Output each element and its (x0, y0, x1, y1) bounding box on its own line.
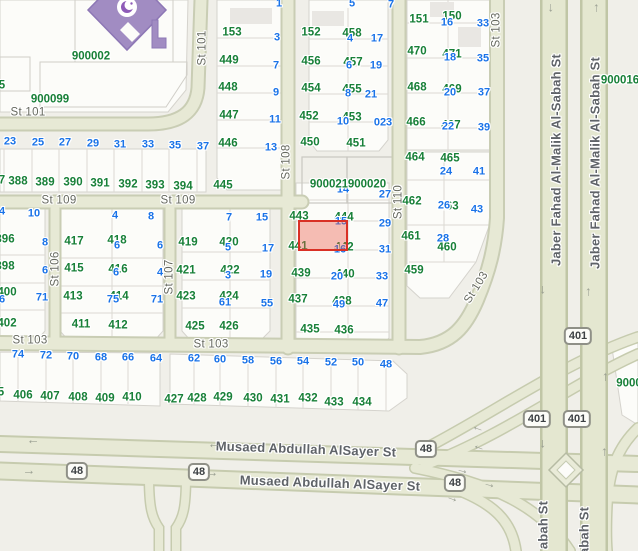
parcel-number-label: 435 (300, 324, 319, 336)
parcel-number-label: 7 (0, 175, 5, 187)
address-number-label: 37 (197, 142, 209, 153)
address-number-label: 71 (151, 295, 163, 306)
address-number-label: 9 (273, 88, 279, 99)
route-shield-48: 48 (66, 462, 88, 480)
address-number-label: 29 (87, 139, 99, 150)
map-labels-layer: 5738838939039139239339415344944844744644… (0, 0, 638, 551)
address-number-label: 17 (262, 244, 274, 255)
address-number-label: 3 (274, 33, 280, 44)
parcel-number-label: 425 (185, 321, 204, 333)
parcel-number-label: 448 (218, 82, 237, 94)
address-number-label: 27 (59, 138, 71, 149)
address-number-label: 6 (346, 61, 352, 72)
road-direction-arrow-icon: → (455, 461, 471, 477)
parcel-number-label: 459 (404, 265, 423, 277)
address-number-label: 43 (471, 205, 483, 216)
complex-number-label: 9000 (616, 378, 638, 390)
parcel-number-label: 447 (219, 110, 238, 122)
road-direction-arrow-icon: → (482, 475, 498, 491)
address-number-label: 6 (157, 241, 163, 252)
address-number-label: 20 (444, 88, 456, 99)
address-number-label: 28 (437, 234, 449, 245)
address-number-label: 33 (477, 19, 489, 30)
route-shield-401: 401 (564, 327, 592, 345)
address-number-label: 8 (148, 212, 154, 223)
parcel-number-label: 413 (63, 291, 82, 303)
road-direction-arrow-icon: → (580, 286, 593, 299)
address-number-label: 3 (225, 271, 231, 282)
road-direction-arrow-icon: → (208, 442, 221, 455)
street-name-label: Musaed Abdullah AlSayer St (240, 473, 421, 492)
address-number-label: 25 (32, 138, 44, 149)
parcel-number-label: 393 (145, 180, 164, 192)
road-direction-arrow-icon: → (596, 446, 609, 459)
parcel-number-label: 408 (68, 392, 87, 404)
map-canvas[interactable]: 5738838939039139239339415344944844744644… (0, 0, 638, 551)
address-number-label: 75 (107, 295, 119, 306)
address-number-label: 4 (112, 211, 118, 222)
parcel-number-label: 388 (8, 176, 27, 188)
parcel-number-label: 415 (64, 263, 83, 275)
road-direction-arrow-icon: → (588, 2, 601, 15)
address-number-label: 6 (42, 266, 48, 277)
parcel-number-label: 461 (401, 231, 420, 243)
street-name-label: St 101 (197, 30, 209, 65)
street-name-label: St 101 (10, 107, 45, 119)
parcel-number-label: 451 (346, 138, 365, 150)
parcel-number-label: 392 (118, 179, 137, 191)
parcel-number-label: 421 (176, 265, 195, 277)
parcel-number-label: 468 (407, 82, 426, 94)
parcel-number-label: 445 (213, 180, 232, 192)
address-number-label: 5 (225, 243, 231, 254)
address-number-label: 26 (438, 201, 450, 212)
street-name-label: St 103 (12, 335, 47, 347)
address-number-label: 4 (157, 268, 163, 279)
parcel-number-label: 407 (40, 391, 59, 403)
parcel-number-label: 411 (72, 319, 91, 331)
address-number-label: 41 (473, 167, 485, 178)
address-number-label: 31 (114, 140, 126, 151)
parcel-number-label: 389 (35, 177, 54, 189)
address-number-label: 7 (388, 0, 394, 11)
address-number-label: 64 (150, 354, 162, 365)
address-number-label: 70 (67, 352, 79, 363)
address-number-label: 35 (477, 54, 489, 65)
parcel-number-label: 423 (176, 291, 195, 303)
parcel-number-label: 5 (0, 80, 5, 92)
address-number-label: 1 (276, 0, 282, 10)
address-number-label: 71 (36, 293, 48, 304)
street-name-label: abah St (537, 501, 550, 549)
parcel-number-label: 446 (218, 138, 237, 150)
address-number-label: 4 (0, 207, 5, 218)
address-number-label: 24 (440, 167, 452, 178)
address-number-label: 16 (441, 18, 453, 29)
street-name-label: Jaber Fahad Al-Malik Al-Sabah St (589, 57, 602, 269)
address-number-label: 23 (4, 137, 16, 148)
parcel-number-label: 428 (187, 393, 206, 405)
address-number-label: 47 (376, 299, 388, 310)
address-number-label: 7 (226, 213, 232, 224)
address-number-label: 35 (169, 141, 181, 152)
street-name-label: Musaed Abdullah AlSayer St (216, 439, 397, 458)
parcel-number-label: 151 (409, 14, 428, 26)
address-number-label: 8 (345, 89, 351, 100)
road-direction-arrow-icon: → (445, 489, 462, 506)
address-number-label: 39 (478, 123, 490, 134)
parcel-number-label: 454 (301, 83, 320, 95)
address-number-label: 66 (122, 353, 134, 364)
street-name-label: abah St (578, 507, 591, 551)
complex-number-label: 900016 (601, 75, 638, 87)
address-number-label: 27 (379, 190, 391, 201)
address-number-label: 19 (370, 61, 382, 72)
address-number-label: 21 (365, 90, 377, 101)
parcel-number-label: 432 (298, 393, 317, 405)
parcel-number-label: 152 (301, 27, 320, 39)
address-number-label: 29 (379, 219, 391, 230)
address-number-label: 61 (219, 298, 231, 309)
address-number-label: 50 (352, 358, 364, 369)
parcel-number-label: 402 (0, 318, 17, 330)
address-number-label: 62 (188, 354, 200, 365)
parcel-number-label: 427 (164, 394, 183, 406)
address-number-label: 11 (269, 115, 281, 126)
street-name-label: St 110 (393, 185, 405, 219)
road-direction-arrow-icon: → (539, 438, 552, 451)
address-number-label: 19 (260, 270, 272, 281)
parcel-number-label: 394 (173, 181, 192, 193)
road-direction-arrow-icon: → (23, 464, 36, 477)
road-direction-arrow-icon: → (206, 466, 219, 479)
address-number-label: 55 (261, 299, 273, 310)
address-number-label: 37 (478, 88, 490, 99)
address-number-label: 17 (371, 34, 383, 45)
address-number-label: 18 (444, 53, 456, 64)
parcel-number-label: 436 (334, 325, 353, 337)
complex-number-label: 900021 (310, 179, 348, 191)
parcel-number-label: 391 (90, 178, 109, 190)
parcel-number-label: 419 (178, 237, 197, 249)
parcel-number-label: 398 (0, 261, 15, 273)
parcel-number-label: 409 (95, 393, 114, 405)
parcel-number-label: 431 (270, 394, 289, 406)
route-shield-401: 401 (523, 410, 551, 428)
address-number-label: 22 (442, 122, 454, 133)
parcel-number-label: 5 (0, 387, 4, 399)
address-number-label: 68 (95, 353, 107, 364)
address-number-label: 6 (113, 268, 119, 279)
address-number-label: 8 (42, 238, 48, 249)
address-number-label: 13 (265, 143, 277, 154)
address-number-label: 15 (256, 213, 268, 224)
parcel-number-label: 452 (299, 111, 318, 123)
address-number-label: 33 (142, 140, 154, 151)
address-number-label: 10 (28, 209, 40, 220)
street-name-label: St 109 (160, 195, 195, 207)
address-number-label: 10 (337, 117, 349, 128)
road-direction-arrow-icon: → (470, 442, 487, 459)
parcel-number-label: 426 (219, 321, 238, 333)
address-number-label: 023 (374, 118, 392, 129)
road-direction-arrow-icon: → (27, 438, 40, 451)
street-name-label: St 103 (491, 12, 503, 47)
address-number-label: 72 (40, 351, 52, 362)
parcel-number-label: 429 (213, 392, 232, 404)
parcel-number-label: 439 (291, 268, 310, 280)
street-name-label: St 103 (193, 339, 228, 351)
address-number-label: 6 (114, 241, 120, 252)
street-name-label: St 108 (281, 144, 293, 179)
address-number-label: 6 (0, 295, 5, 306)
parcel-number-label: 464 (405, 152, 424, 164)
address-number-label: 52 (325, 358, 337, 369)
road-direction-arrow-icon: → (469, 423, 486, 440)
parcel-number-label: 437 (288, 294, 307, 306)
street-name-label: St 109 (41, 195, 76, 207)
complex-number-label: 900099 (31, 94, 69, 106)
street-name-label: St 107 (164, 259, 176, 294)
address-number-label: 74 (12, 350, 24, 361)
complex-number-label: 900020 (348, 179, 386, 191)
street-name-label: Jaber Fahad Al-Malik Al-Sabah St (550, 54, 563, 266)
road-direction-arrow-icon: → (547, 2, 560, 15)
address-number-label: 20 (331, 272, 343, 283)
complex-number-label: 900002 (72, 51, 110, 63)
address-number-label: 33 (376, 272, 388, 283)
street-name-label: St 103 (463, 270, 491, 306)
address-number-label: 4 (347, 34, 353, 45)
address-number-label: 5 (349, 0, 355, 10)
route-shield-48: 48 (415, 440, 437, 458)
parcel-number-label: 449 (219, 55, 238, 67)
parcel-number-label: 153 (222, 27, 241, 39)
address-number-label: 54 (297, 357, 309, 368)
highlighted-parcel[interactable] (298, 220, 348, 251)
parcel-number-label: 450 (300, 137, 319, 149)
parcel-number-label: 406 (13, 390, 32, 402)
road-direction-arrow-icon: → (539, 284, 552, 297)
parcel-number-label: 434 (352, 397, 371, 409)
road-direction-arrow-icon: → (597, 371, 610, 384)
parcel-number-label: 433 (324, 397, 343, 409)
address-number-label: 60 (214, 355, 226, 366)
parcel-number-label: 412 (108, 320, 127, 332)
parcel-number-label: 430 (243, 393, 262, 405)
parcel-number-label: 410 (122, 392, 141, 404)
parcel-number-label: 462 (402, 196, 421, 208)
address-number-label: 31 (379, 245, 391, 256)
parcel-number-label: 456 (301, 56, 320, 68)
parcel-number-label: 466 (406, 117, 425, 129)
parcel-number-label: 396 (0, 234, 15, 246)
parcel-number-label: 465 (440, 153, 459, 165)
parcel-number-label: 390 (63, 177, 82, 189)
address-number-label: 56 (270, 357, 282, 368)
street-name-label: St 106 (50, 251, 62, 286)
address-number-label: 48 (380, 360, 392, 371)
address-number-label: 49 (333, 300, 345, 311)
address-number-label: 58 (242, 356, 254, 367)
route-shield-401: 401 (563, 410, 591, 428)
address-number-label: 7 (273, 61, 279, 72)
parcel-number-label: 417 (64, 236, 83, 248)
parcel-number-label: 470 (407, 46, 426, 58)
